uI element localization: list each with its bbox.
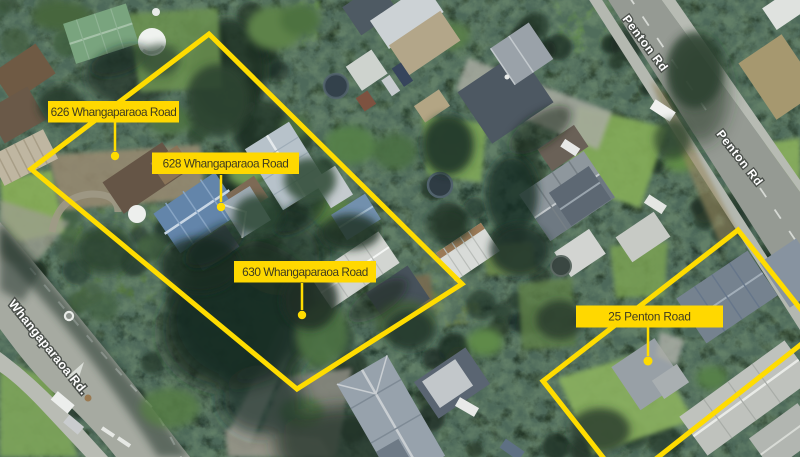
svg-text:626 Whangaparaoa Road: 626 Whangaparaoa Road — [51, 105, 177, 119]
svg-text:25 Penton Road: 25 Penton Road — [608, 310, 690, 324]
svg-text:630 Whangaparaoa Road: 630 Whangaparaoa Road — [242, 265, 368, 279]
svg-text:628 Whangaparaoa Road: 628 Whangaparaoa Road — [163, 157, 289, 171]
